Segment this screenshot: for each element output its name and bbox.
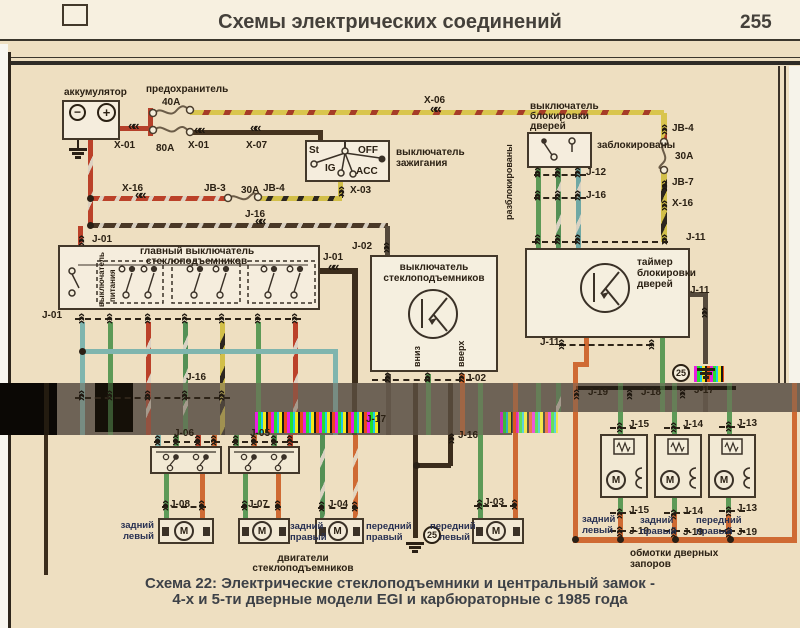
connector-mark	[286, 435, 294, 443]
connector-mark	[254, 313, 262, 321]
ignition-pos-ig: IG	[325, 163, 336, 174]
scan-glitch	[255, 412, 380, 433]
connector-label: J-13	[737, 418, 757, 429]
connector-label: J-03	[484, 497, 504, 508]
connector-mark	[534, 167, 542, 175]
band-wire-trace	[792, 383, 797, 412]
ground-icon	[703, 376, 709, 379]
motor-tab-icon	[162, 527, 169, 536]
page-title: Схемы электрических соединений	[0, 11, 780, 34]
connector-mark	[661, 124, 669, 132]
motor-tab-icon	[279, 527, 286, 536]
connector-label: J-16	[186, 372, 206, 383]
wire	[573, 362, 578, 383]
main-switch-power-label-2: питания	[108, 256, 117, 302]
ground-icon	[697, 368, 715, 371]
wire	[413, 435, 418, 538]
motor-symbol-icon: М	[252, 521, 272, 541]
connector-label: J-01	[42, 310, 62, 321]
connector-mark	[648, 339, 656, 347]
connector-mark	[574, 234, 582, 242]
ground-icon	[72, 152, 84, 155]
right-margin	[789, 66, 800, 396]
connector-mark	[218, 313, 226, 321]
band-wire-trace	[426, 383, 431, 435]
lock-motor-symbol-icon: М	[660, 470, 680, 490]
motor-tab-icon	[203, 527, 210, 536]
connector-label: X-16	[672, 198, 693, 209]
motor-position-label: переднийправый	[366, 521, 412, 543]
connector-mark	[384, 372, 392, 380]
ignition-pos-off: OFF	[358, 145, 378, 156]
connector-mark	[574, 190, 582, 198]
lock-motor-symbol-icon: М	[714, 470, 734, 490]
lock-motor-symbol-icon: М	[606, 470, 626, 490]
page-number: 255	[740, 12, 772, 34]
connector-mark	[154, 435, 162, 443]
ground-ref-25: 25	[672, 364, 690, 382]
connector-label: J-01	[92, 234, 112, 245]
connector-mark	[232, 435, 240, 443]
wire	[200, 474, 205, 518]
connector-label: J-04	[328, 499, 348, 510]
door-locks-caption-1: обмотки дверных	[630, 548, 718, 559]
wire	[164, 474, 169, 518]
connector-mark	[430, 105, 438, 113]
connector-mark	[181, 390, 189, 398]
connector-mark	[351, 501, 359, 509]
coil-icon	[741, 466, 753, 490]
wire	[243, 474, 248, 518]
junction-dot	[672, 536, 679, 543]
timer-label-2: блокировки	[637, 268, 696, 279]
connector-mark	[218, 390, 226, 398]
lock-position-label: заднийлевый	[582, 514, 622, 536]
ground-icon	[75, 156, 81, 159]
connector-mark	[573, 389, 581, 397]
wire	[276, 474, 281, 518]
door-lock-locked-label: заблокированы	[597, 140, 675, 151]
connector-mark	[701, 307, 709, 315]
motor-symbol-icon: М	[174, 521, 194, 541]
connector-mark	[270, 435, 278, 443]
connector-mark	[554, 167, 562, 175]
fuse-label: предохранитель	[146, 84, 228, 95]
connector-label: J-19	[588, 387, 608, 398]
door-lock-switch-label-3: дверей	[530, 121, 566, 132]
wire	[80, 349, 338, 354]
junction-dot	[413, 462, 420, 469]
connector-mark	[511, 499, 519, 507]
door-lock-unlocked-label: разблокированы	[504, 124, 514, 220]
connector-mark	[534, 190, 542, 198]
junction-dot	[572, 536, 579, 543]
window-switch-label-2: стеклоподъемников	[370, 273, 498, 284]
connector-mark	[661, 180, 669, 188]
connector-label: J-16	[458, 430, 478, 441]
connector-label: J-16	[245, 209, 265, 220]
left-frame-line	[8, 52, 11, 628]
connector-mark	[250, 124, 258, 132]
main-switch-label-2: стеклоподъемников	[146, 256, 247, 267]
junction-dot	[617, 536, 624, 543]
wire	[88, 223, 388, 228]
scan-glitch	[500, 412, 558, 433]
ignition-pos-acc: ACC	[356, 166, 378, 177]
motor-tab-icon	[353, 527, 360, 536]
band-wire-trace	[727, 383, 732, 412]
connector-mark	[616, 422, 624, 430]
connector-label: J-18	[641, 387, 661, 398]
ground-icon	[412, 550, 418, 553]
connector-label: J-16	[586, 190, 606, 201]
wire	[88, 140, 93, 228]
connector-mark	[448, 433, 456, 441]
timer-label-3: дверей	[637, 279, 673, 290]
connector-label: X-01	[188, 140, 209, 151]
connector-label: X-07	[246, 140, 267, 151]
junction-dot	[727, 536, 734, 543]
connector-label: J-02	[466, 373, 486, 384]
connector-mark	[198, 500, 206, 508]
connector-mark	[78, 313, 86, 321]
wire	[258, 196, 342, 201]
connector-mark	[383, 242, 391, 250]
connector-mark	[626, 389, 634, 397]
connector-mark	[725, 421, 733, 429]
wire	[88, 196, 230, 201]
lock-position-label: переднийправый	[696, 515, 736, 537]
wire	[792, 412, 797, 539]
main-switch-power-label-1: выключатель	[97, 251, 106, 307]
connector-mark	[554, 190, 562, 198]
connector-mark	[534, 234, 542, 242]
lock-position-label: заднийправый	[640, 515, 680, 537]
junction-dot	[87, 222, 94, 229]
connector-mark	[338, 186, 346, 194]
connector-mark	[181, 313, 189, 321]
band-wire-trace	[478, 383, 483, 435]
motors-caption-2: стеклоподъемников	[243, 563, 363, 574]
battery-minus-terminal: −	[69, 104, 86, 121]
door-lock-timer-symbol-icon	[578, 261, 632, 315]
connector-label: X-06	[424, 95, 445, 106]
connector-mark	[670, 422, 678, 430]
battery-plus-terminal: +	[97, 103, 116, 122]
connector-label: J-11	[540, 337, 559, 348]
connector-mark	[661, 200, 669, 208]
connector-label: JB-3	[204, 183, 226, 194]
connector-mark	[725, 506, 733, 514]
band-wire-trace	[556, 383, 561, 412]
connector-label: J-11	[686, 232, 705, 243]
connector-label: 30A	[241, 185, 259, 196]
connector-label: J-01	[323, 252, 343, 263]
wire	[333, 352, 338, 383]
connector-mark	[291, 313, 299, 321]
connector-mark	[106, 313, 114, 321]
connector-mark	[424, 372, 432, 380]
ignition-label-1: выключатель	[396, 147, 465, 158]
wire	[352, 268, 358, 383]
band-wire-trace	[448, 383, 453, 435]
connector-label: J-14	[683, 419, 703, 430]
band-wire-trace	[44, 383, 49, 435]
band-wire-trace	[513, 383, 518, 412]
connector-mark	[78, 390, 86, 398]
wire	[660, 338, 665, 383]
figure-caption-line1: Схема 22: Электрические стеклоподъемники…	[0, 575, 800, 592]
battery-ground-stem	[77, 140, 79, 148]
connector-label: J-15	[629, 419, 649, 430]
band-wire-trace	[413, 383, 418, 435]
connector-mark	[144, 313, 152, 321]
door-locks-caption-2: запоров	[630, 559, 671, 570]
connector-label: J-08	[170, 499, 190, 510]
timer-label-1: таймер	[637, 257, 673, 268]
connector-dash	[560, 344, 652, 346]
motor-position-label: переднийлевый	[430, 521, 470, 543]
connector-label: J-11	[690, 285, 709, 296]
door-switch-rear-left-icon	[150, 446, 222, 474]
motor-position-label: заднийправый	[290, 521, 332, 543]
band-wire-trace	[386, 383, 391, 435]
scanned-page: Схемы электрических соединений 255 аккум…	[0, 0, 800, 628]
band-wire-trace	[573, 383, 578, 412]
connector-mark	[106, 390, 114, 398]
connector-label: J-17	[694, 385, 714, 396]
connector-mark	[194, 435, 202, 443]
coil-icon	[633, 466, 645, 490]
ground-icon	[409, 546, 421, 549]
right-frame-line	[778, 66, 780, 396]
connector-label: 30A	[675, 151, 693, 162]
band-wire-trace	[536, 383, 541, 412]
resistor-icon	[613, 438, 635, 456]
wire	[573, 412, 578, 540]
connector-label: JB-4	[263, 183, 285, 194]
connector-label: JB-4	[672, 123, 694, 134]
ground-icon	[69, 148, 87, 151]
fuse-40a-label: 40A	[162, 97, 180, 108]
connector-mark	[78, 235, 86, 243]
door-lock-switch-icon	[527, 132, 592, 168]
battery-label: аккумулятор	[64, 87, 127, 98]
wire	[703, 292, 708, 364]
connector-label: J-12	[586, 167, 606, 178]
connector-label: X-01	[114, 140, 135, 151]
connector-mark	[328, 263, 336, 271]
connector-mark	[679, 388, 687, 396]
door-switch-rear-right-icon	[228, 446, 300, 474]
ground-icon	[700, 372, 712, 375]
ignition-pos-st: St	[309, 145, 319, 156]
connector-mark	[274, 500, 282, 508]
resistor-icon	[667, 438, 689, 456]
frame-rule-thick	[0, 61, 800, 65]
figure-caption-line2: 4-х и 5-ти дверные модели EGI и карбюрат…	[0, 591, 800, 608]
motor-tab-icon	[476, 527, 483, 536]
coil-icon	[687, 466, 699, 490]
connector-mark	[661, 234, 669, 242]
motor-tab-icon	[242, 527, 249, 536]
connector-label: X-03	[350, 185, 371, 196]
connector-label: X-16	[122, 183, 143, 194]
motor-tab-icon	[513, 527, 520, 536]
connector-mark	[144, 390, 152, 398]
connector-label: JB-7	[672, 177, 694, 188]
junction-dot	[79, 348, 86, 355]
frame-rule-thin	[0, 57, 800, 58]
window-switch-label-1: выключатель	[370, 262, 498, 273]
connector-label: J-02	[352, 241, 372, 252]
window-switch-up-label: вверх	[456, 329, 466, 367]
connector-label: J-13	[737, 503, 757, 514]
connector-label: J-17	[366, 414, 386, 425]
resistor-icon	[721, 438, 743, 456]
connector-label: J-07	[248, 499, 268, 510]
left-margin	[0, 44, 8, 628]
ignition-label-2: зажигания	[396, 158, 447, 169]
connector-mark	[128, 122, 136, 130]
band-wire-trace	[618, 383, 623, 412]
header-rule	[0, 39, 800, 41]
band-wire-trace	[460, 383, 465, 435]
connector-mark	[210, 435, 218, 443]
connector-label: J-05	[250, 428, 270, 439]
junction-dot	[87, 195, 94, 202]
connector-mark	[318, 501, 326, 509]
connector-label: J-19	[737, 527, 757, 538]
wire	[44, 435, 48, 575]
fuse-80a-label: 80A	[156, 143, 174, 154]
motor-position-label: заднийлевый	[96, 520, 154, 542]
connector-label: J-06	[174, 428, 194, 439]
motor-symbol-icon: М	[486, 521, 506, 541]
connector-mark	[194, 126, 202, 134]
connector-mark	[554, 234, 562, 242]
connector-mark	[574, 167, 582, 175]
window-switch-down-label: вниз	[412, 331, 422, 367]
right-frame-line2	[784, 66, 786, 402]
